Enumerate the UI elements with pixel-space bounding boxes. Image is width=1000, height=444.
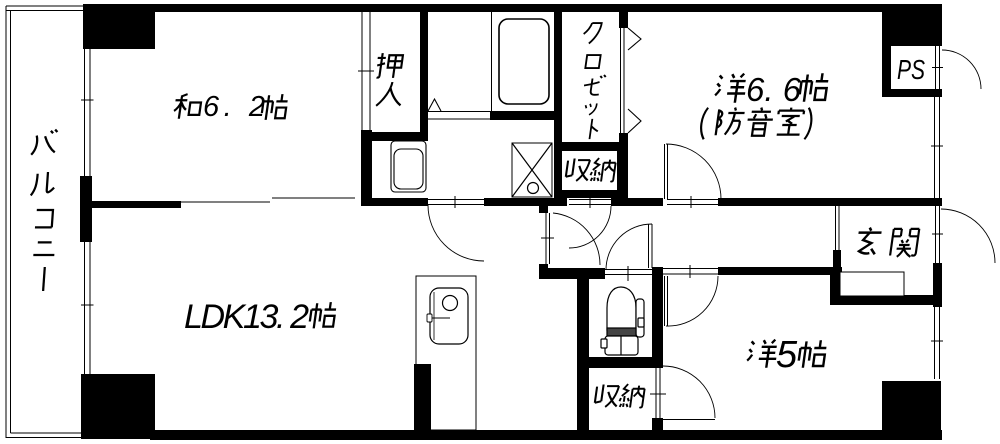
svg-text:5: 5: [776, 334, 798, 376]
svg-text:PS: PS: [897, 54, 925, 85]
svg-text:LDK13. 2: LDK13. 2: [184, 298, 309, 336]
svg-text:6. 6: 6. 6: [746, 71, 802, 108]
